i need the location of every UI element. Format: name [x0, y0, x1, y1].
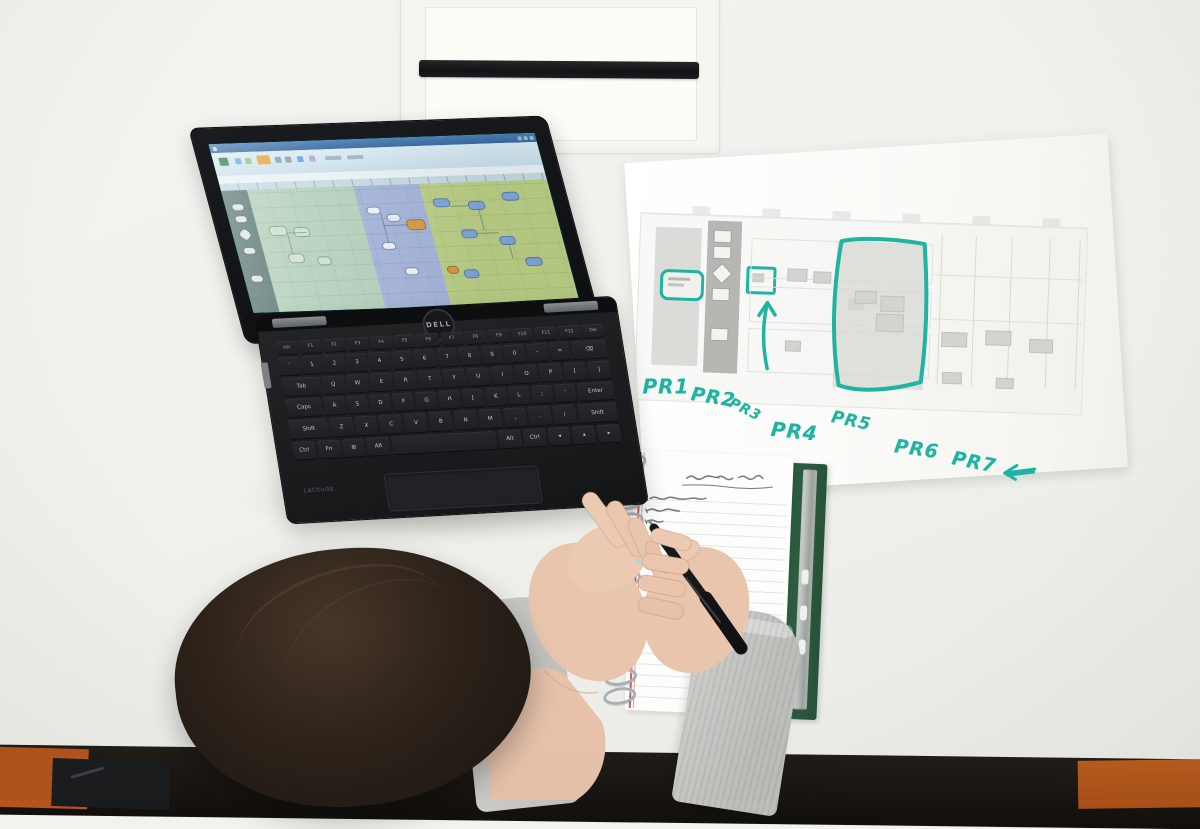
ribbon-icon: [284, 156, 292, 162]
hinge-cap-right: [543, 301, 598, 313]
key-Caps: Caps: [285, 398, 324, 419]
connector-line: [478, 209, 485, 230]
connector-line: [287, 235, 293, 255]
key-3: 3: [345, 352, 369, 372]
keyboard: escF1F2F3F4F5F6F7F8F9F10F11F12Del`123456…: [275, 324, 622, 461]
window-maximize-icon: [523, 136, 528, 140]
key-T: T: [417, 370, 442, 390]
key-F7: F7: [440, 331, 464, 346]
dark-object-under-desk: [51, 758, 171, 810]
key-S: S: [346, 395, 370, 415]
key-F10: F10: [511, 327, 535, 342]
printed-diagram-paper: PR1 PR2 PR3 PR4 PR5 PR6 PR7: [624, 134, 1127, 497]
model-label: Latitude: [303, 485, 335, 495]
key-F: F: [392, 392, 416, 412]
diagram-chip: [788, 269, 806, 281]
key-▸: ▸: [596, 423, 622, 443]
key-J: J: [461, 388, 485, 408]
key-P: P: [538, 363, 563, 383]
key-▴: ▴: [572, 425, 598, 445]
key-Ctrl: Ctrl: [522, 428, 548, 448]
key-F3: F3: [346, 337, 370, 352]
ribbon-group: [325, 156, 342, 161]
key-2: 2: [323, 354, 347, 374]
orange-surface-right: [1078, 759, 1200, 809]
diagram-chip: [1030, 340, 1052, 353]
key-5: 5: [390, 350, 414, 370]
key-Alt: Alt: [497, 429, 523, 449]
key-U: U: [466, 367, 491, 387]
ribbon-icon: [274, 157, 282, 163]
file-tab-icon: [218, 158, 229, 166]
diagram-block: [715, 231, 731, 243]
marker-label-pr7: PR7: [950, 447, 998, 477]
key-Fn: Fn: [316, 439, 342, 459]
key-G: G: [415, 391, 439, 411]
key-]: ]: [587, 360, 612, 380]
ribbon-group: [347, 155, 364, 160]
key-space: [391, 430, 499, 455]
key-F5: F5: [393, 334, 417, 349]
key-4: 4: [368, 351, 392, 371]
key-Enter: Enter: [576, 381, 615, 402]
laptop-screen: [207, 132, 580, 314]
key-E: E: [369, 372, 394, 392]
key-⌫: ⌫: [570, 339, 608, 360]
key-0: 0: [503, 344, 527, 364]
marker-label-pr4: PR4: [770, 417, 819, 446]
key-⊞: ⊞: [341, 438, 367, 458]
ribbon-icon: [308, 156, 316, 162]
key-Shift: Shift: [288, 418, 330, 439]
connector-line: [383, 224, 407, 226]
key-F4: F4: [369, 335, 393, 350]
screen-highlight-node: [406, 220, 425, 230]
diagram-chip: [997, 379, 1013, 389]
key-F11: F11: [534, 326, 558, 341]
marker-circled-shape: [659, 269, 704, 302]
connector-line: [508, 244, 513, 259]
marker-left-arrow-icon: [997, 461, 1038, 482]
key-.: .: [527, 406, 553, 426]
dell-logo-text: DELL: [425, 320, 452, 329]
screen-node: [366, 207, 380, 213]
screen-node: [502, 193, 519, 200]
swimlane-dark: [703, 221, 742, 374]
key-A: A: [322, 396, 346, 416]
hands-and-pen: [480, 460, 820, 800]
key-Q: Q: [321, 375, 346, 395]
connector-line: [450, 205, 469, 207]
key-R: R: [393, 371, 418, 391]
key-6: 6: [413, 349, 437, 369]
screen-node: [382, 243, 396, 249]
key-C: C: [378, 414, 404, 434]
screen-node: [243, 248, 256, 254]
key-W: W: [345, 374, 370, 394]
diagram-block: [713, 289, 729, 301]
app-icon: [212, 147, 217, 151]
key-Del: Del: [581, 324, 605, 339]
key-Shift: Shift: [577, 402, 619, 423]
key-L: L: [507, 386, 531, 406]
key-H: H: [438, 390, 462, 410]
ribbon-icon: [244, 158, 252, 164]
screen-node: [468, 202, 485, 209]
key-[: [: [562, 361, 587, 381]
marker-up-arrow-icon: [751, 296, 780, 373]
key-/: /: [552, 405, 578, 425]
diagram-chip: [942, 333, 966, 347]
key-8: 8: [458, 346, 482, 366]
key-,: ,: [502, 407, 528, 427]
key-F8: F8: [464, 330, 488, 345]
diagram-decision-diamond: [713, 264, 731, 282]
screen-node: [464, 270, 479, 277]
window-minimize-icon: [517, 136, 522, 140]
key--: -: [525, 342, 549, 362]
key-1: 1: [300, 355, 324, 375]
marker-label-pr1: PR1: [642, 374, 689, 398]
key-D: D: [369, 394, 393, 414]
screen-node: [235, 216, 248, 222]
sheet-area: [221, 180, 579, 313]
key-=: =: [548, 341, 572, 361]
diagram-chip: [986, 331, 1010, 345]
ribbon-icon: [296, 156, 304, 162]
key-◂: ◂: [547, 426, 573, 446]
diagram-chip: [786, 341, 800, 350]
screen-node: [461, 230, 477, 237]
key-esc: esc: [275, 341, 299, 356]
key-B: B: [428, 412, 454, 432]
key-X: X: [354, 416, 380, 436]
screen-highlight-node: [447, 267, 459, 273]
key-Alt: Alt: [366, 436, 392, 456]
diagram-block: [714, 247, 730, 259]
printed-process-diagram: PR1 PR2 PR3 PR4 PR5 PR6 PR7: [631, 204, 1092, 488]
marker-region-rectangle: [820, 227, 942, 411]
key-M: M: [478, 409, 504, 429]
key-Tab: Tab: [281, 376, 322, 397]
screen-node: [433, 199, 450, 206]
key-V: V: [403, 413, 429, 433]
key-F12: F12: [558, 325, 582, 340]
key-9: 9: [480, 345, 504, 365]
marker-label-pr6: PR6: [893, 435, 940, 463]
key-7: 7: [435, 347, 459, 367]
key-`: `: [278, 356, 302, 376]
screen-node: [318, 257, 332, 264]
screen-decision-node: [239, 228, 252, 241]
connector-line: [476, 232, 498, 234]
diagram-block: [711, 329, 727, 341]
ribbon-highlight-icon: [256, 155, 271, 164]
cable-slot: [419, 60, 699, 79]
key-K: K: [484, 387, 508, 407]
screen-node: [525, 258, 542, 265]
key-Ctrl: Ctrl: [292, 441, 318, 461]
screen-node: [269, 227, 287, 235]
screen-node: [288, 254, 304, 262]
key-F1: F1: [299, 339, 323, 354]
marker-label-pr5: PR5: [829, 407, 873, 435]
key-F6: F6: [417, 333, 441, 348]
key-Z: Z: [329, 417, 355, 437]
screen-node: [251, 276, 264, 282]
screen-node: [405, 268, 419, 274]
key-Y: Y: [442, 368, 467, 388]
key-N: N: [453, 410, 479, 430]
screen-node: [387, 215, 401, 221]
key-I: I: [490, 365, 515, 385]
key-F9: F9: [487, 329, 511, 344]
screen-node: [232, 204, 245, 210]
key-;: ;: [530, 385, 554, 405]
key-': ': [553, 383, 577, 403]
hinge-cap-left: [272, 316, 327, 328]
ribbon-icon: [234, 158, 242, 164]
key-O: O: [514, 364, 539, 384]
window-close-icon: [529, 135, 534, 139]
diagram-chip: [943, 373, 961, 384]
key-F2: F2: [322, 338, 346, 353]
